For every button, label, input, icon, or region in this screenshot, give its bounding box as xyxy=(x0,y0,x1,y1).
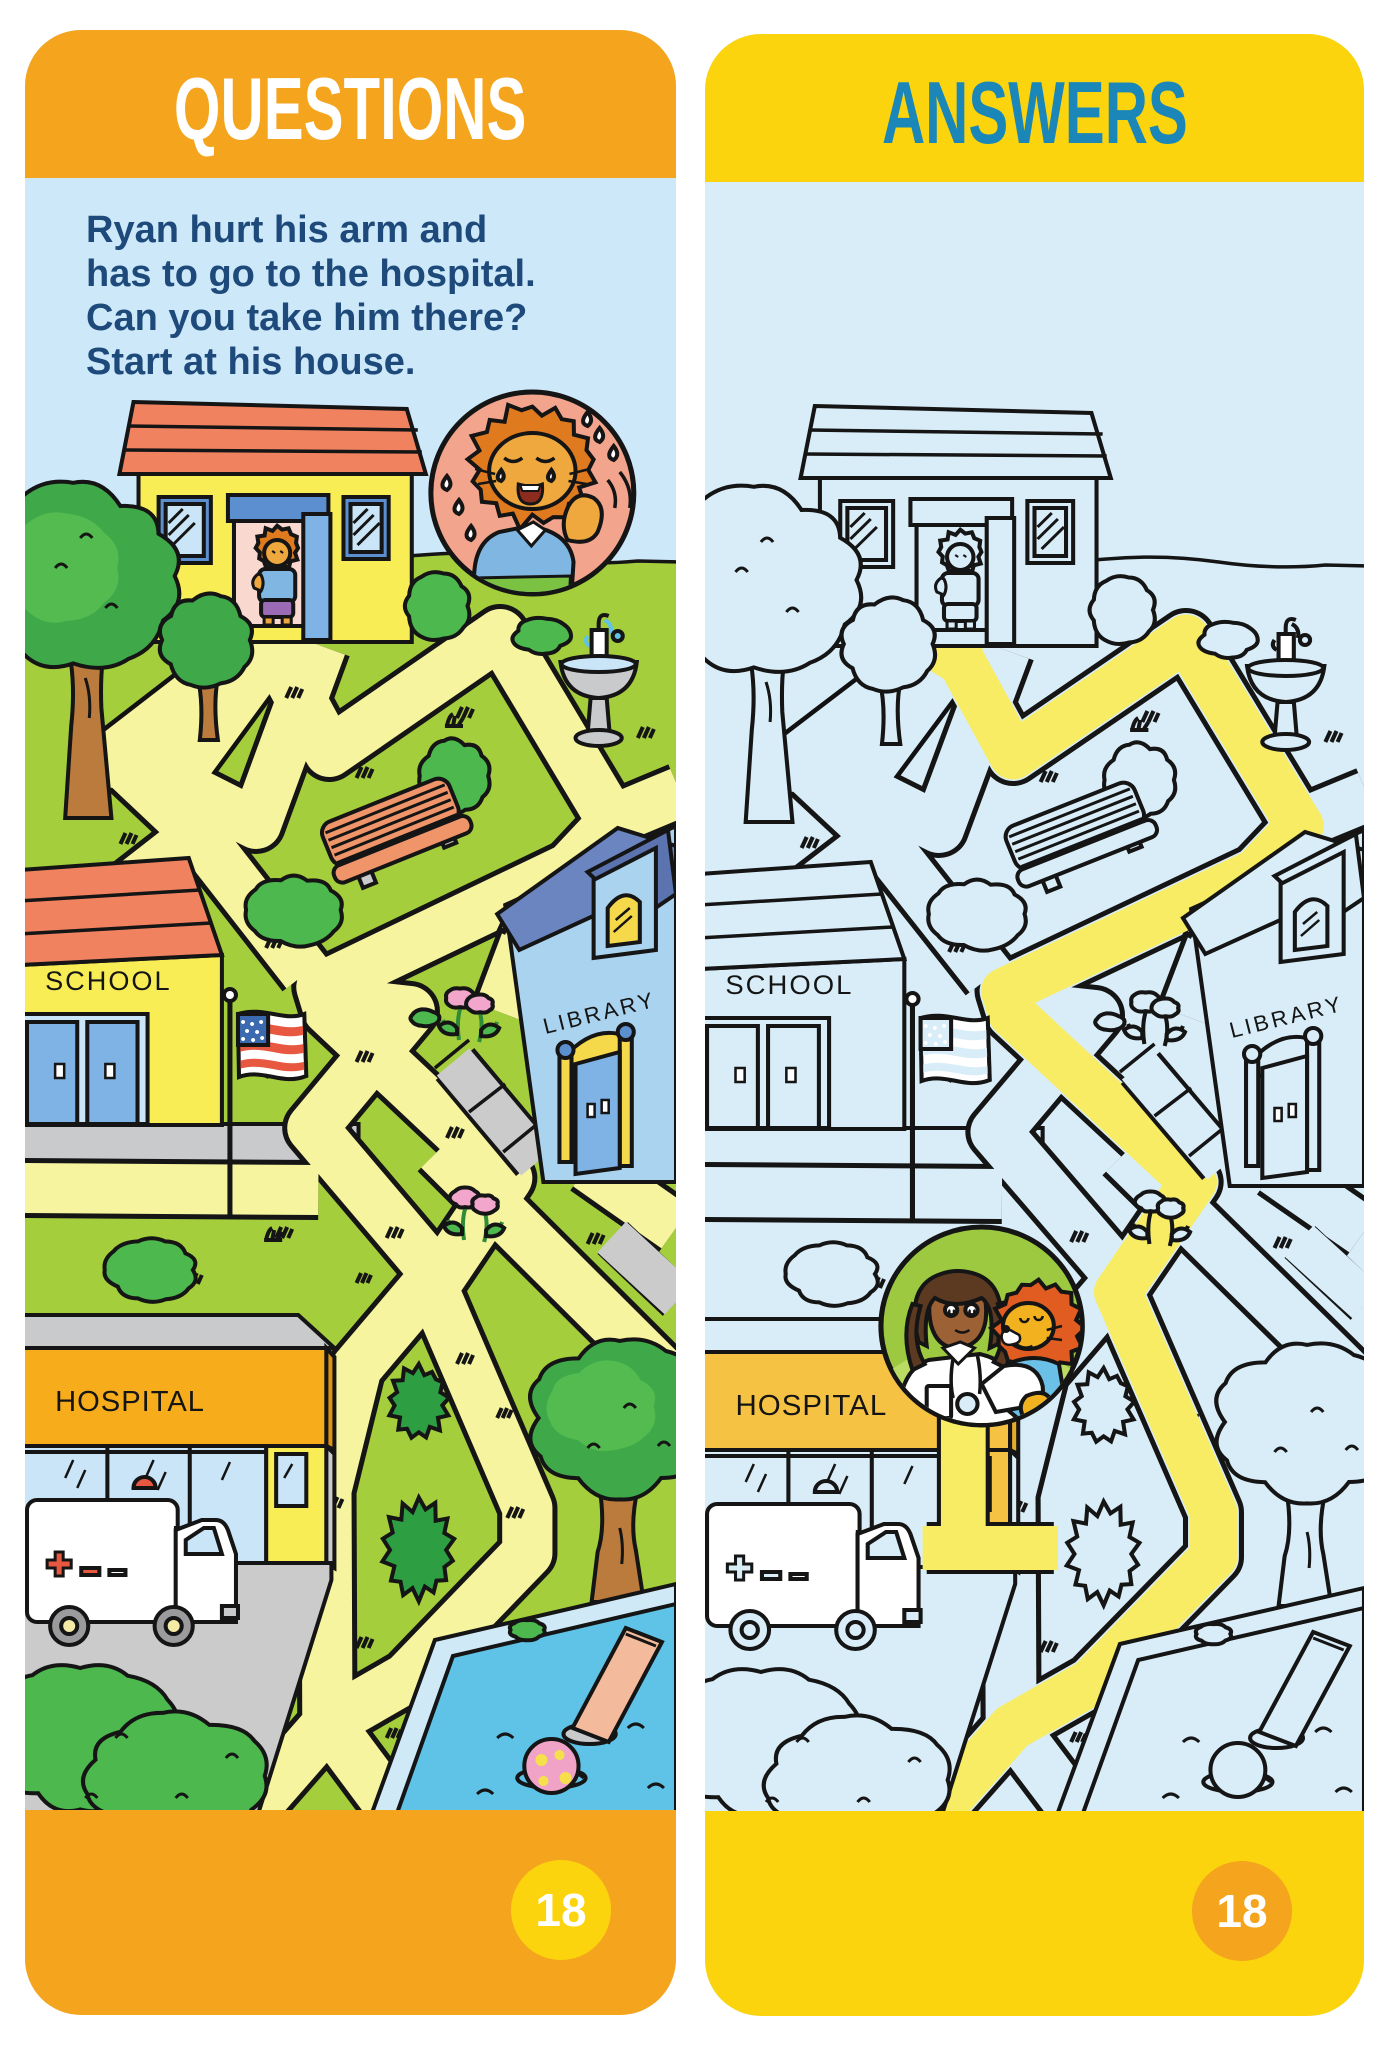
svg-text:HOSPITAL: HOSPITAL xyxy=(55,1386,205,1418)
svg-text:SCHOOL: SCHOOL xyxy=(725,969,853,1000)
svg-text:SCHOOL: SCHOOL xyxy=(45,966,172,996)
svg-text:HOSPITAL: HOSPITAL xyxy=(736,1390,888,1422)
